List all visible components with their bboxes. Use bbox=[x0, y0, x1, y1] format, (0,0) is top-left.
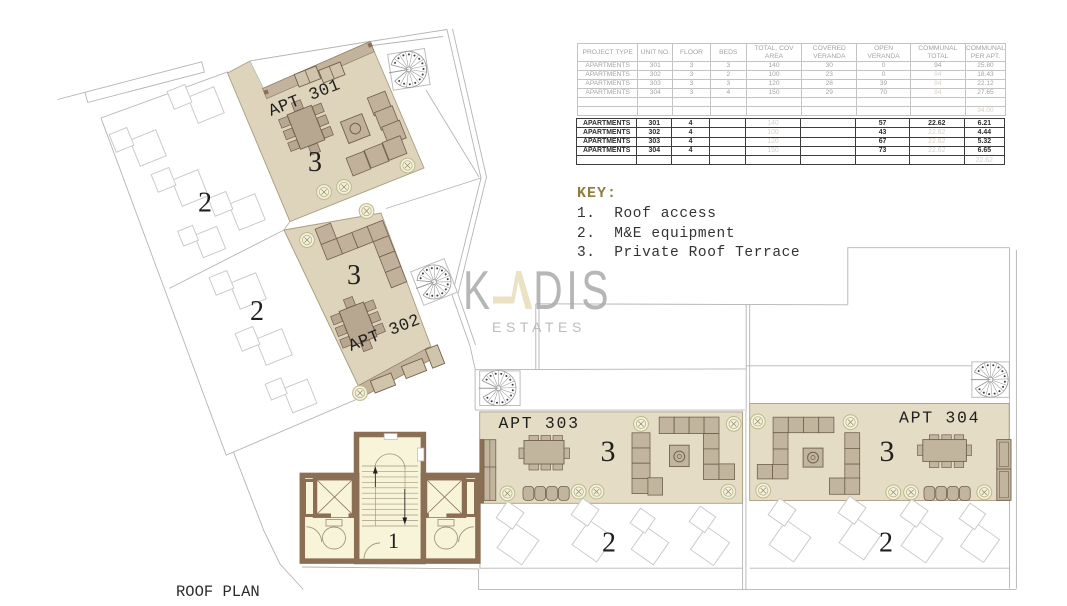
svg-text:2: 2 bbox=[602, 528, 616, 559]
svg-text:ROOF PLAN: ROOF PLAN bbox=[176, 583, 260, 601]
svg-text:2: 2 bbox=[250, 296, 264, 327]
svg-text:DIS: DIS bbox=[533, 260, 612, 321]
svg-text:3: 3 bbox=[601, 435, 616, 468]
svg-text:APT 303: APT 303 bbox=[499, 414, 580, 433]
svg-text:3: 3 bbox=[347, 260, 361, 291]
svg-text:K: K bbox=[463, 260, 494, 321]
svg-text:2: 2 bbox=[879, 528, 893, 559]
svg-text:ESTATES: ESTATES bbox=[492, 319, 586, 335]
svg-text:2: 2 bbox=[198, 188, 212, 219]
svg-text:3: 3 bbox=[308, 147, 322, 178]
svg-text:3: 3 bbox=[880, 435, 895, 468]
svg-text:APT 304: APT 304 bbox=[899, 409, 980, 428]
svg-text:1: 1 bbox=[388, 528, 399, 553]
